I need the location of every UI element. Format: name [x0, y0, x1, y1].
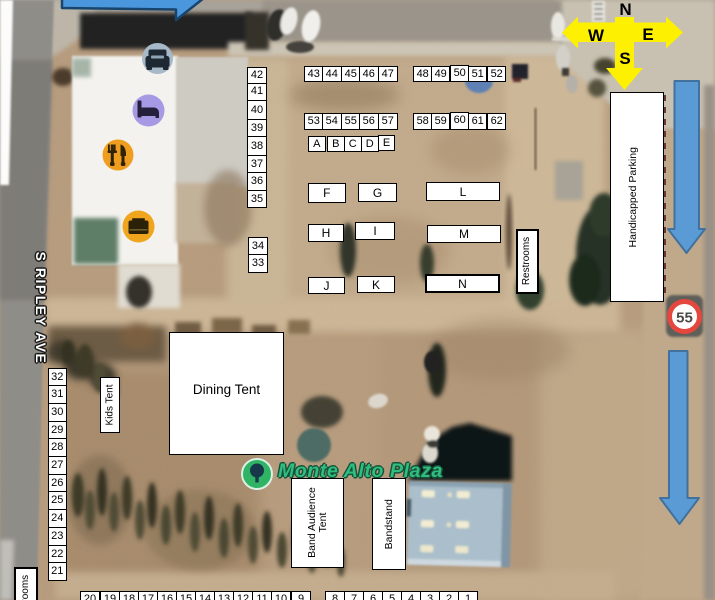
- svg-text:W: W: [588, 26, 605, 45]
- svg-text:S: S: [619, 49, 630, 68]
- svg-text:55: 55: [676, 310, 693, 327]
- svg-text:E: E: [642, 25, 653, 44]
- svg-text:N: N: [619, 0, 631, 19]
